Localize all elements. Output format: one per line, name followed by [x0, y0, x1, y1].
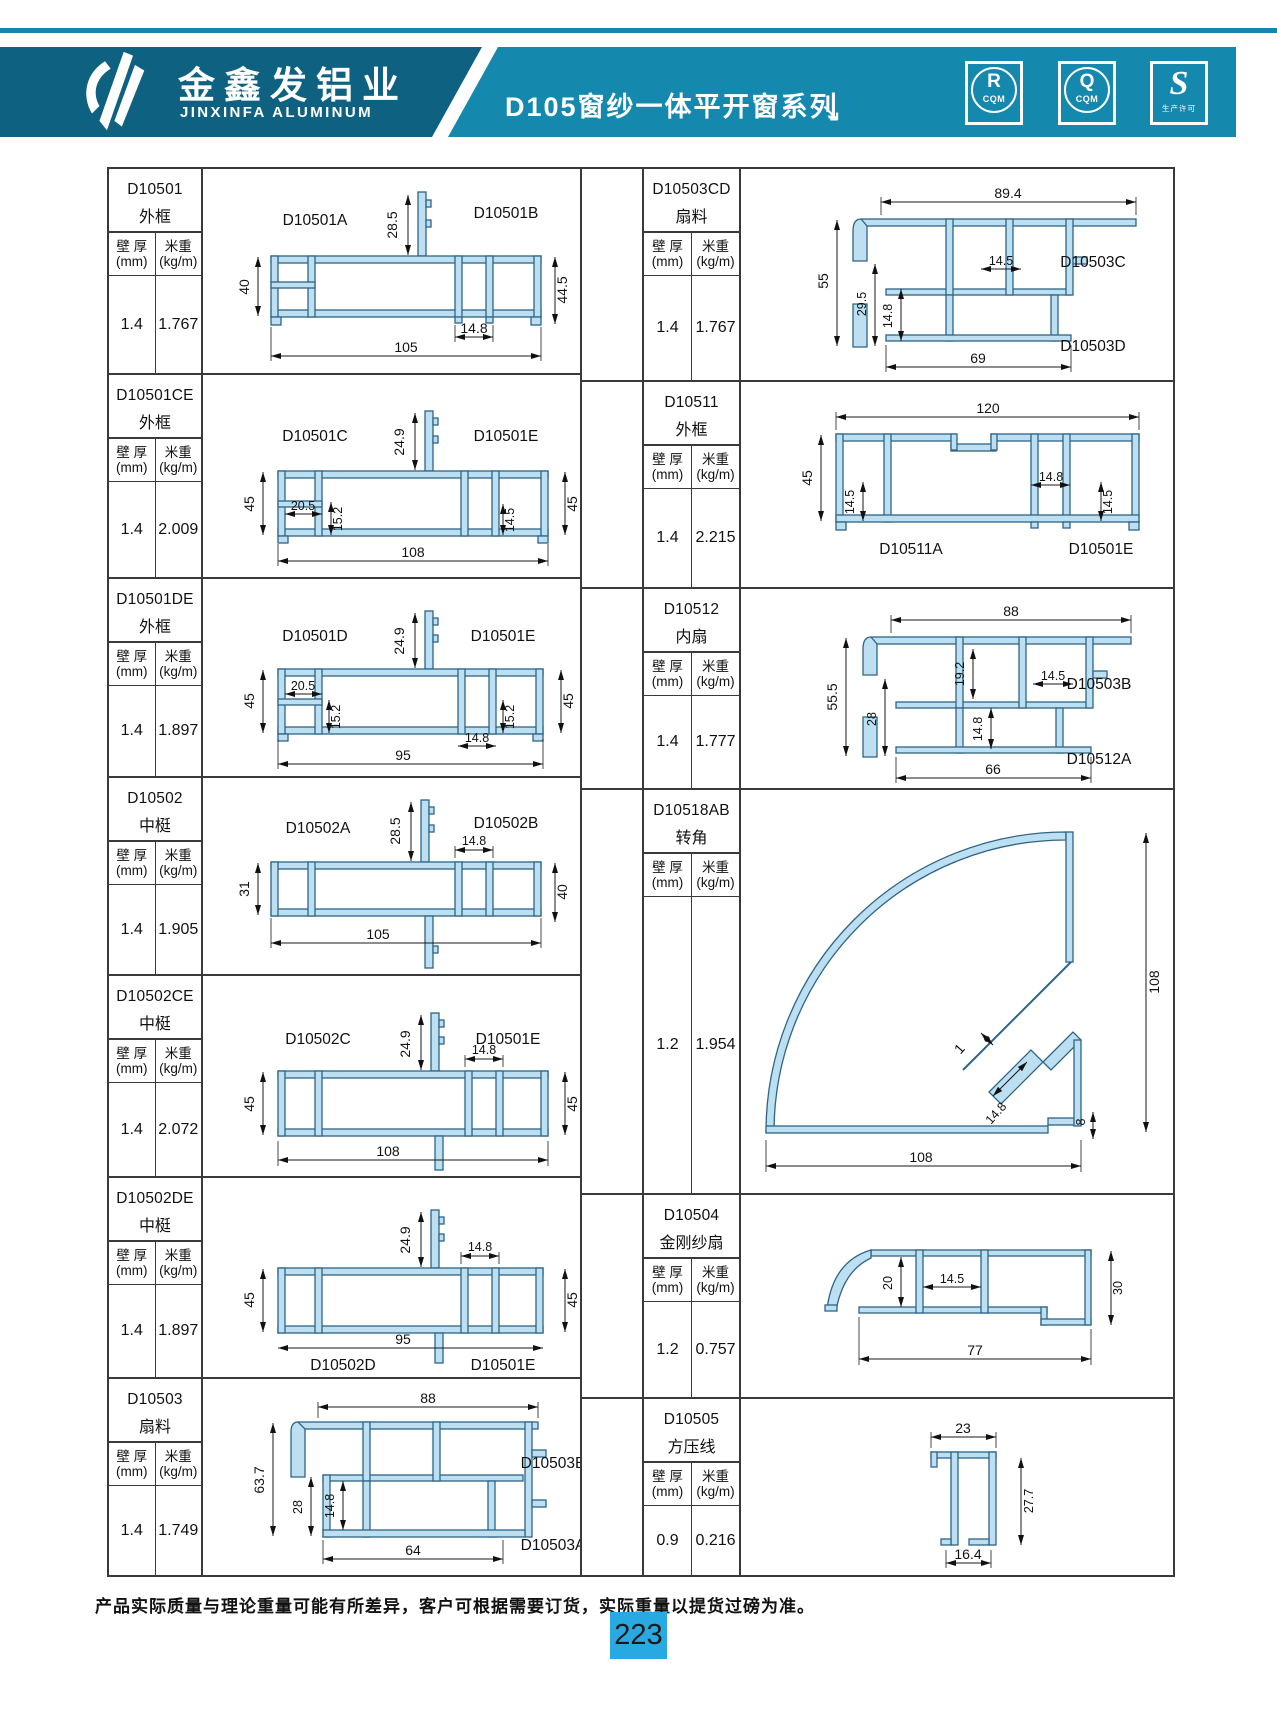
table-right-column: D10503CD 扇料 壁 厚(mm)1.4米重(kg/m)1.767 [582, 169, 1173, 1575]
wall-value: 1.2 [644, 1302, 691, 1397]
svg-text:14.8: 14.8 [1039, 470, 1063, 484]
svg-text:15.2: 15.2 [331, 507, 345, 531]
part-label: D10503B [521, 1455, 580, 1472]
profile-type: 中梃 [109, 1208, 201, 1240]
profile-info: D10501DE 外框 壁 厚(mm)1.4米重(kg/m)1.897 [109, 579, 203, 776]
profile-drawing: 24.9 14.8 45 45 95 D10502D D10501E [203, 1178, 580, 1377]
svg-text:24.9: 24.9 [397, 1030, 413, 1057]
row-d10505: D10505 方压线 壁 厚(mm)0.9米重(kg/m)0.216 23 27… [582, 1399, 1173, 1575]
svg-text:108: 108 [401, 544, 425, 560]
svg-text:8: 8 [1074, 1118, 1088, 1125]
svg-text:108: 108 [1146, 970, 1162, 994]
svg-text:14.8: 14.8 [323, 1494, 337, 1518]
page-number-badge: 223 [610, 1612, 667, 1659]
profile-info: D10503CD 扇料 壁 厚(mm)1.4米重(kg/m)1.767 [642, 169, 741, 380]
profile-code: D10501 [109, 169, 201, 199]
cert-circle-icon: R CQM [971, 67, 1017, 113]
wall-value: 1.4 [109, 1486, 155, 1575]
svg-text:29.5: 29.5 [855, 292, 869, 316]
svg-text:105: 105 [394, 339, 418, 355]
svg-text:20: 20 [881, 1276, 895, 1290]
svg-text:24.9: 24.9 [391, 428, 407, 455]
page-title: D105窗纱一体平开窗系列 [505, 85, 839, 124]
profile-drawing: 108 1 14.8 8 108 [741, 790, 1173, 1193]
svg-text:40: 40 [236, 279, 252, 295]
profile-code: D10512 [644, 589, 739, 619]
profile-type: 方压线 [644, 1429, 739, 1461]
brand-logo-icon [72, 50, 168, 134]
part-label: D10501A [283, 212, 348, 229]
profile-code: D10502DE [109, 1178, 201, 1208]
wall-value: 1.4 [109, 686, 155, 776]
profile-shape [931, 1452, 996, 1545]
profile-info: D10501CE 外框 壁 厚(mm)1.4米重(kg/m)2.009 [109, 375, 203, 577]
profile-info: D10518AB 转角 壁 厚(mm)1.2米重(kg/m)1.954 [642, 790, 741, 1193]
weight-value: 2.009 [156, 482, 202, 577]
part-label: D10502C [285, 1031, 351, 1048]
profile-drawing: 20 14.5 30 77 [741, 1195, 1173, 1397]
row-d10502de: D10502DE 中梃 壁 厚(mm)1.4米重(kg/m)1.897 24.9… [109, 1178, 580, 1379]
profile-drawing: D10501D D10501E 24.9 20.5 45 15.2 15.2 1… [203, 579, 580, 776]
weight-value: 2.072 [156, 1083, 202, 1176]
svg-text:45: 45 [241, 1292, 257, 1308]
profile-info: D10512 内扇 壁 厚(mm)1.4米重(kg/m)1.777 [642, 589, 741, 788]
svg-text:64: 64 [405, 1542, 421, 1558]
svg-text:14.8: 14.8 [971, 717, 985, 741]
svg-text:45: 45 [564, 1292, 580, 1308]
profile-drawing: D10502A D10502B 28.5 14.8 31 40 105 [203, 778, 580, 974]
svg-text:1: 1 [951, 1040, 968, 1057]
profile-drawing: 23 27.7 16.4 [741, 1399, 1173, 1575]
svg-text:28.5: 28.5 [387, 817, 403, 844]
page-header: 金鑫发铝业 JINXINFA ALUMINUM D105窗纱一体平开窗系列 ↘ … [0, 47, 1277, 137]
table-left-column: D10501 外框 壁 厚(mm)1.4米重(kg/m)1.767 D10501… [109, 169, 582, 1575]
svg-text:95: 95 [395, 1331, 411, 1347]
cert-badge-q: Q CQM [1058, 61, 1116, 125]
svg-text:66: 66 [985, 761, 1001, 777]
svg-text:14.8: 14.8 [460, 320, 487, 336]
profile-drawing: D10502C D10501E 24.9 14.8 45 45 108 [203, 976, 580, 1176]
svg-text:95: 95 [395, 747, 411, 763]
svg-text:45: 45 [241, 1096, 257, 1112]
part-label: D10503C [1060, 254, 1126, 271]
svg-text:14.8: 14.8 [881, 304, 895, 328]
wall-value: 1.4 [109, 276, 155, 373]
cert-circle-icon: Q CQM [1064, 67, 1110, 113]
arrow-icon: ↘ [820, 97, 842, 128]
weight-value: 0.216 [692, 1506, 739, 1575]
svg-text:14.8: 14.8 [465, 731, 489, 745]
svg-text:16.4: 16.4 [954, 1546, 981, 1562]
profile-type: 中梃 [109, 808, 201, 840]
row-d10501: D10501 外框 壁 厚(mm)1.4米重(kg/m)1.767 D10501… [109, 169, 580, 375]
profile-drawing: 89.4 55 29.5 14.8 14.5 D10503C D10503D 6… [741, 169, 1173, 380]
profile-type: 转角 [644, 820, 739, 852]
profile-type: 扇料 [644, 199, 739, 231]
profile-shape [766, 832, 1081, 1133]
part-label: D10502A [286, 820, 351, 837]
profile-type: 外框 [109, 405, 201, 437]
weight-value: 2.215 [692, 489, 739, 587]
row-d10511: D10511 外框 壁 厚(mm)1.4米重(kg/m)2.215 120 [582, 382, 1173, 589]
svg-text:45: 45 [241, 496, 257, 512]
weight-value: 1.897 [156, 1285, 202, 1377]
wall-value: 1.4 [644, 696, 691, 788]
row-d10503cd: D10503CD 扇料 壁 厚(mm)1.4米重(kg/m)1.767 [582, 169, 1173, 382]
weight-value: 1.905 [156, 885, 202, 974]
cert-badge-r: R CQM [965, 61, 1023, 125]
svg-text:28.5: 28.5 [384, 211, 400, 238]
profile-info: D10511 外框 壁 厚(mm)1.4米重(kg/m)2.215 [642, 382, 741, 587]
svg-text:14.5: 14.5 [989, 254, 1013, 268]
profile-code: D10501DE [109, 579, 201, 609]
svg-text:108: 108 [376, 1143, 400, 1159]
svg-text:88: 88 [1003, 603, 1019, 619]
brand-name-cn: 金鑫发铝业 [178, 55, 408, 109]
svg-text:88: 88 [420, 1390, 436, 1406]
spacer-cell [582, 790, 642, 1193]
weight-value: 1.749 [156, 1486, 202, 1575]
svg-text:14.5: 14.5 [1041, 669, 1065, 683]
profile-type: 扇料 [109, 1409, 201, 1441]
row-d10503: D10503 扇料 壁 厚(mm)1.4米重(kg/m)1.749 [109, 1379, 580, 1575]
spacer-cell [582, 1195, 642, 1397]
svg-text:40: 40 [554, 884, 570, 900]
profile-type: 外框 [644, 412, 739, 444]
svg-text:31: 31 [236, 881, 252, 897]
row-d10501ce: D10501CE 外框 壁 厚(mm)1.4米重(kg/m)2.009 D105… [109, 375, 580, 579]
cert-badge-license: S 生产许可 [1150, 61, 1208, 125]
spacer-cell [582, 1399, 642, 1575]
weight-value: 1.897 [156, 686, 202, 776]
profile-info: D10502DE 中梃 壁 厚(mm)1.4米重(kg/m)1.897 [109, 1178, 203, 1377]
svg-text:14.5: 14.5 [1101, 490, 1115, 514]
weight-value: 1.954 [692, 897, 739, 1193]
svg-text:27.7: 27.7 [1022, 1489, 1036, 1513]
svg-text:45: 45 [241, 693, 257, 709]
svg-text:14.8: 14.8 [468, 1240, 492, 1254]
part-label: D10501E [471, 1357, 536, 1374]
profile-drawing: D10501A D10501B 28.5 40 44.5 14.8 105 [203, 169, 580, 373]
profile-drawing: 120 45 14.5 14.8 14.5 D10511A D10501E [741, 382, 1173, 587]
profile-type: 外框 [109, 609, 201, 641]
svg-text:105: 105 [366, 926, 390, 942]
row-d10501de: D10501DE 外框 壁 厚(mm)1.4米重(kg/m)1.897 D105… [109, 579, 580, 778]
svg-text:55: 55 [815, 273, 831, 289]
brand-name-en: JINXINFA ALUMINUM [180, 104, 373, 121]
svg-text:89.4: 89.4 [994, 185, 1021, 201]
svg-text:55.5: 55.5 [824, 683, 840, 710]
profile-code: D10502CE [109, 976, 201, 1006]
svg-text:45: 45 [799, 470, 815, 486]
profile-shape [863, 637, 1131, 757]
profile-table: D10501 外框 壁 厚(mm)1.4米重(kg/m)1.767 D10501… [107, 167, 1175, 1577]
row-d10512: D10512 内扇 壁 厚(mm)1.4米重(kg/m)1.777 [582, 589, 1173, 790]
top-rule [0, 28, 1277, 33]
weight-value: 1.767 [692, 276, 739, 380]
svg-text:23: 23 [955, 1420, 971, 1436]
spacer-cell [582, 169, 642, 380]
svg-text:28: 28 [865, 712, 879, 726]
weight-value: 0.757 [692, 1302, 739, 1397]
profile-shape [291, 1422, 546, 1537]
svg-text:24.9: 24.9 [397, 1226, 413, 1253]
svg-text:108: 108 [909, 1149, 933, 1165]
profile-code: D10501CE [109, 375, 201, 405]
part-label: D10501E [1069, 541, 1134, 558]
profile-code: D10505 [644, 1399, 739, 1429]
profile-type: 金刚纱扇 [644, 1225, 739, 1257]
svg-text:15.2: 15.2 [503, 705, 517, 729]
profile-code: D10518AB [644, 790, 739, 820]
svg-text:14.8: 14.8 [462, 834, 486, 848]
part-label: D10503B [1067, 676, 1132, 693]
svg-text:63.7: 63.7 [251, 1466, 267, 1493]
wall-value: 1.4 [109, 1083, 155, 1176]
spacer-cell [582, 589, 642, 788]
part-label: D10503A [521, 1537, 580, 1554]
svg-text:28: 28 [291, 1500, 305, 1514]
profile-code: D10503 [109, 1379, 201, 1409]
wall-value: 1.4 [109, 482, 155, 577]
row-d10504: D10504 金刚纱扇 壁 厚(mm)1.2米重(kg/m)0.757 20 1… [582, 1195, 1173, 1399]
profile-type: 内扇 [644, 619, 739, 651]
part-label: D10503D [1060, 338, 1126, 355]
spacer-cell [582, 382, 642, 587]
svg-text:45: 45 [560, 693, 576, 709]
svg-text:14.8: 14.8 [983, 1100, 1010, 1127]
weight-value: 1.767 [156, 276, 202, 373]
svg-text:24.9: 24.9 [391, 627, 407, 654]
svg-text:44.5: 44.5 [554, 276, 570, 303]
row-d10502: D10502 中梃 壁 厚(mm)1.4米重(kg/m)1.905 D10502… [109, 778, 580, 976]
part-label: D10512A [1067, 751, 1132, 768]
svg-text:14.8: 14.8 [472, 1043, 496, 1057]
svg-text:14.5: 14.5 [843, 490, 857, 514]
profile-info: D10501 外框 壁 厚(mm)1.4米重(kg/m)1.767 [109, 169, 203, 373]
profile-drawing: 88 55.5 28 19.2 14.5 14.8 D10503B D10512… [741, 589, 1173, 788]
svg-text:45: 45 [564, 496, 580, 512]
profile-info: D10502 中梃 壁 厚(mm)1.4米重(kg/m)1.905 [109, 778, 203, 974]
part-label: D10502D [310, 1357, 376, 1374]
wall-value: 1.4 [644, 489, 691, 587]
profile-info: D10503 扇料 壁 厚(mm)1.4米重(kg/m)1.749 [109, 1379, 203, 1575]
profile-drawing: 88 63.7 28 14.8 D10503B D10503A 64 [203, 1379, 580, 1575]
row-d10518ab: D10518AB 转角 壁 厚(mm)1.2米重(kg/m)1.954 [582, 790, 1173, 1195]
wall-value: 1.2 [644, 897, 691, 1193]
wall-value: 1.4 [109, 1285, 155, 1377]
profile-type: 中梃 [109, 1006, 201, 1038]
svg-text:77: 77 [967, 1342, 983, 1358]
profile-type: 外框 [109, 199, 201, 231]
profile-info: D10505 方压线 壁 厚(mm)0.9米重(kg/m)0.216 [642, 1399, 741, 1575]
svg-text:69: 69 [970, 350, 986, 366]
svg-text:20.5: 20.5 [291, 679, 315, 693]
profile-info: D10504 金刚纱扇 壁 厚(mm)1.2米重(kg/m)0.757 [642, 1195, 741, 1397]
profile-drawing: D10501C D10501E 24.9 45 45 20.5 15.2 14.… [203, 375, 580, 577]
wall-value: 1.4 [644, 276, 691, 380]
profile-shape [836, 434, 1139, 530]
svg-text:45: 45 [564, 1096, 580, 1112]
profile-shape [853, 219, 1136, 347]
svg-text:20.5: 20.5 [291, 499, 315, 513]
part-label: D10501E [474, 428, 539, 445]
wall-value: 0.9 [644, 1506, 691, 1575]
svg-text:14.5: 14.5 [940, 1272, 964, 1286]
profile-info: D10502CE 中梃 壁 厚(mm)1.4米重(kg/m)2.072 [109, 976, 203, 1176]
svg-text:15.2: 15.2 [329, 705, 343, 729]
profile-code: D10511 [644, 382, 739, 412]
part-label: D10511A [879, 541, 943, 558]
svg-text:14.5: 14.5 [503, 508, 517, 532]
svg-text:19.2: 19.2 [953, 662, 967, 686]
profile-code: D10503CD [644, 169, 739, 199]
profile-code: D10504 [644, 1195, 739, 1225]
part-label: D10501E [471, 628, 536, 645]
part-label: D10501B [474, 205, 539, 222]
row-d10502ce: D10502CE 中梃 壁 厚(mm)1.4米重(kg/m)2.072 D105… [109, 976, 580, 1178]
part-label: D10501D [282, 628, 348, 645]
svg-text:120: 120 [976, 400, 1000, 416]
part-label: D10502B [474, 815, 539, 832]
part-label: D10501C [282, 428, 348, 445]
svg-text:30: 30 [1111, 1281, 1125, 1295]
profile-code: D10502 [109, 778, 201, 808]
weight-value: 1.777 [692, 696, 739, 788]
wall-value: 1.4 [109, 885, 155, 974]
footer-note: 产品实际质量与理论重量可能有所差异，客户可根据需要订货，实际重量以提货过磅为准。 [95, 1592, 815, 1617]
